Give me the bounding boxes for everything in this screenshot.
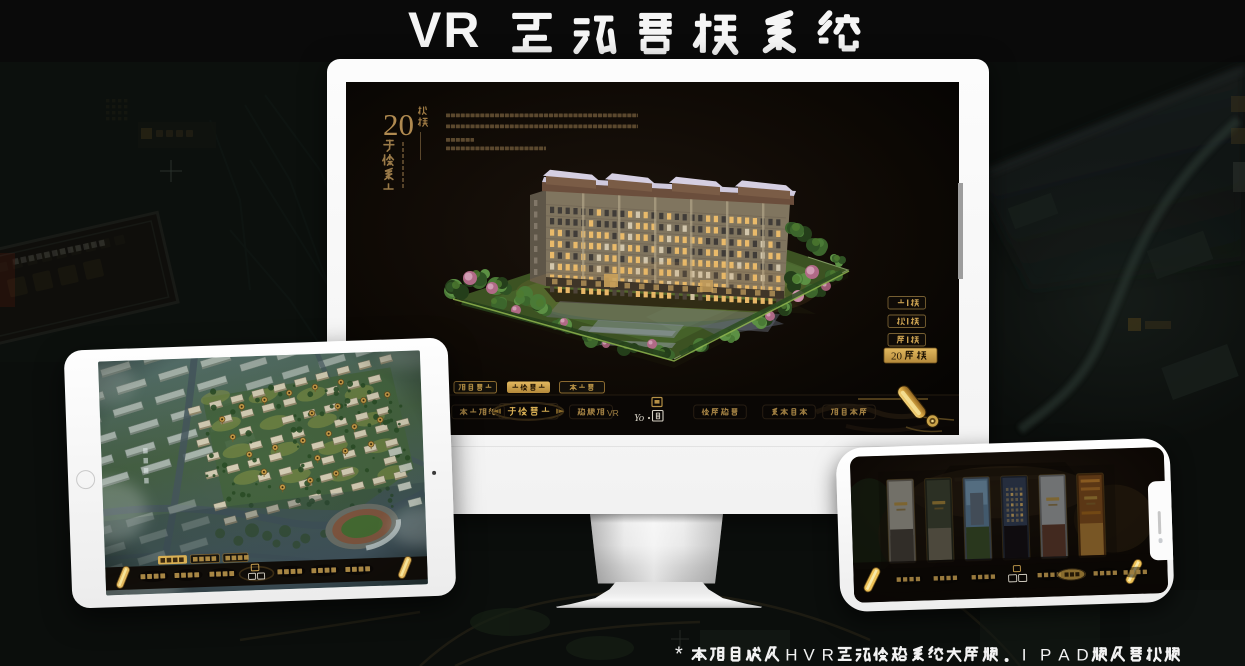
svg-text:VR: VR: [607, 408, 619, 418]
svg-text:A: A: [1058, 645, 1070, 664]
svg-text:*: *: [675, 645, 683, 665]
svg-text:H: H: [785, 645, 797, 664]
svg-text:20: 20: [891, 350, 903, 362]
svg-text:P: P: [1040, 645, 1051, 664]
svg-text:Yo: Yo: [634, 413, 644, 424]
svg-text:VR: VR: [408, 4, 481, 56]
svg-text:I: I: [1022, 645, 1027, 664]
svg-text:D: D: [1076, 645, 1088, 664]
svg-text:R: R: [822, 645, 834, 664]
svg-text:20: 20: [383, 107, 414, 142]
svg-text:V: V: [803, 645, 815, 664]
